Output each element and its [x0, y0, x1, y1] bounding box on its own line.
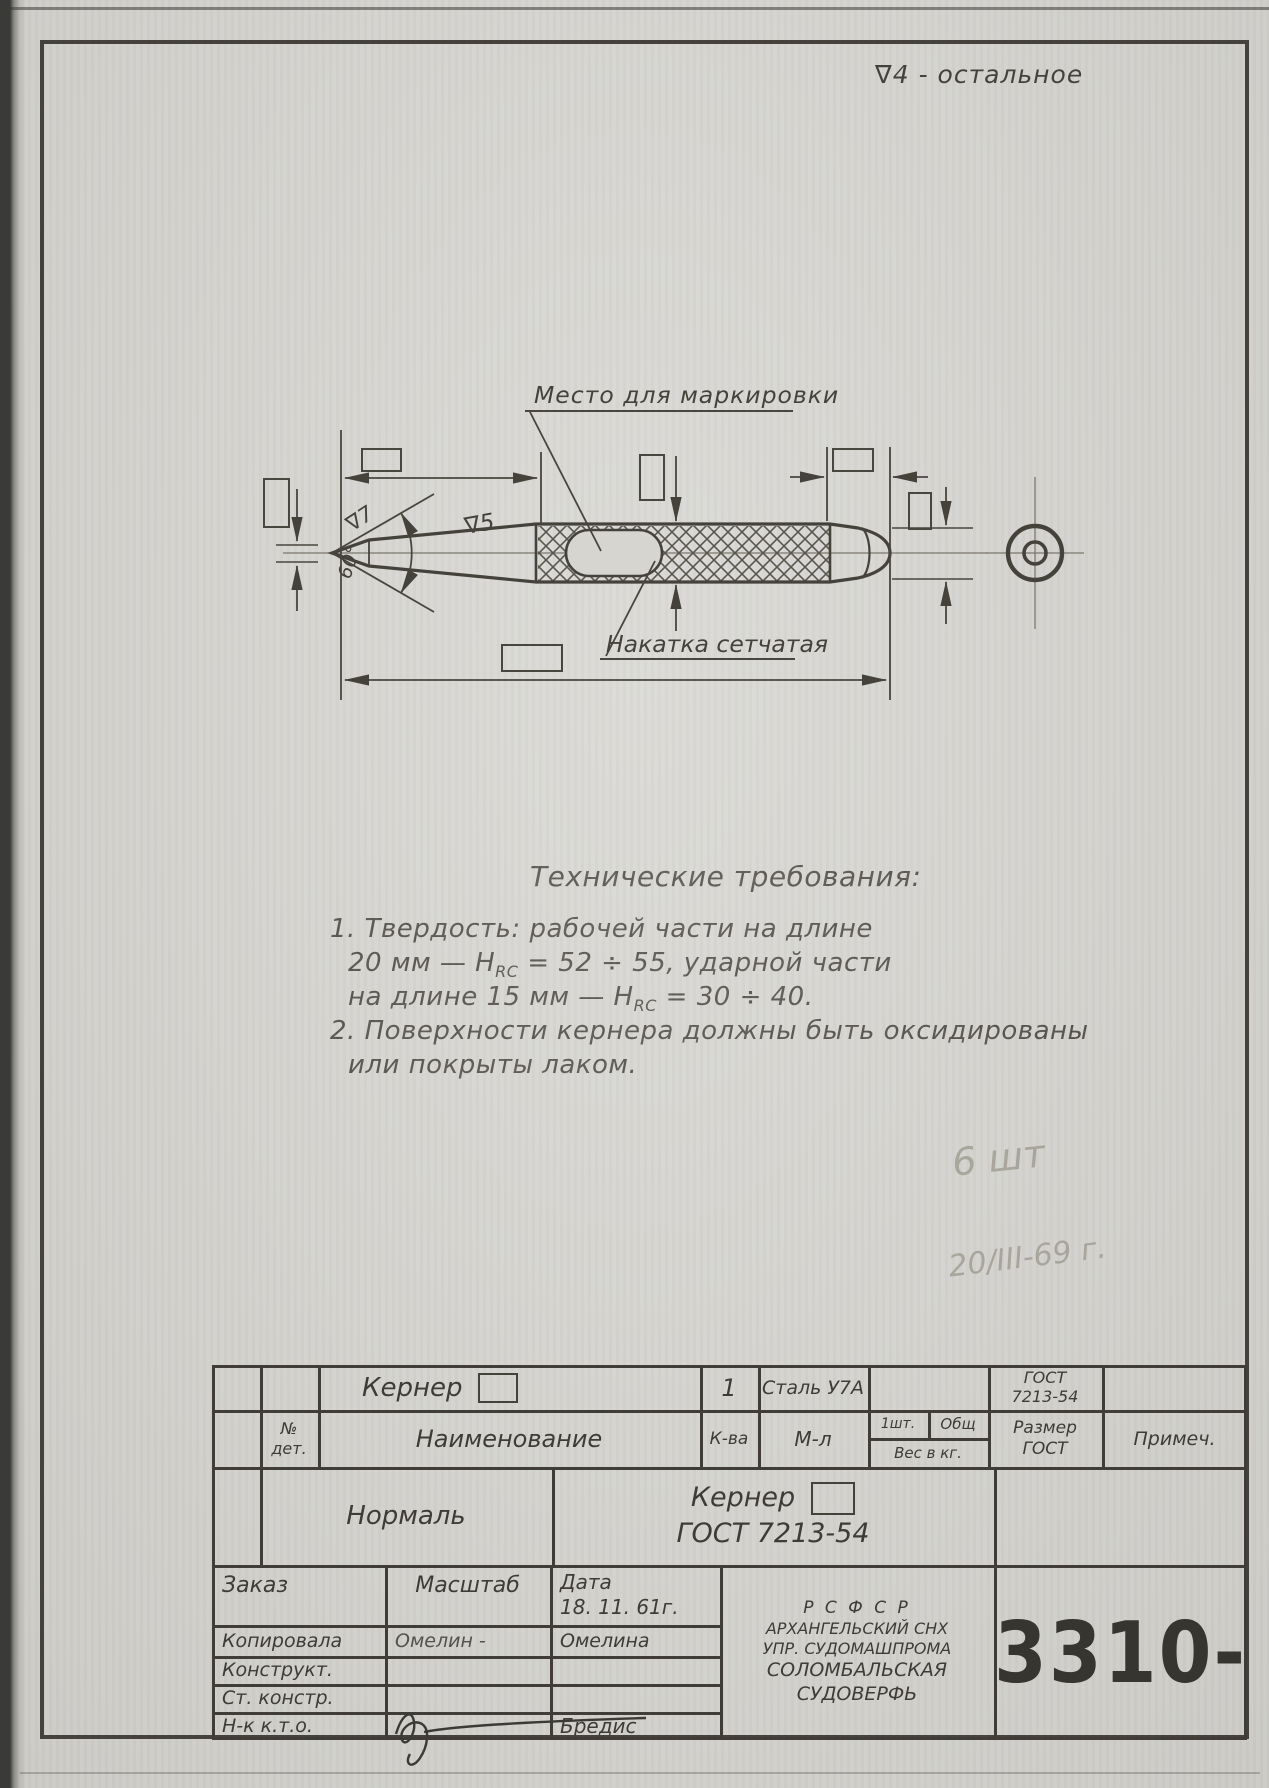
- finish-mark-taper: ∇5: [462, 509, 497, 540]
- dim-box-cap-diameter: [909, 493, 931, 529]
- signature-scrawl: [396, 1714, 646, 1764]
- punch-drawing: Место для маркировки Накатка сетчатая ∇7…: [0, 0, 1269, 1788]
- marking-oval: [566, 530, 662, 576]
- drawing-labels: Место для маркировки Накатка сетчатая ∇7…: [334, 381, 839, 658]
- dim-box-overall-length: [502, 645, 562, 671]
- marking-label: Место для маркировки: [534, 381, 839, 409]
- knurl-label: Накатка сетчатая: [606, 630, 828, 658]
- finish-mark-tip: ∇7: [341, 501, 378, 537]
- dim-box-tip-length: [362, 449, 401, 471]
- dim-box-body-diameter: [640, 455, 664, 500]
- dim-box-cap-length: [833, 449, 873, 471]
- dim-box-tip-diameter: [264, 479, 289, 527]
